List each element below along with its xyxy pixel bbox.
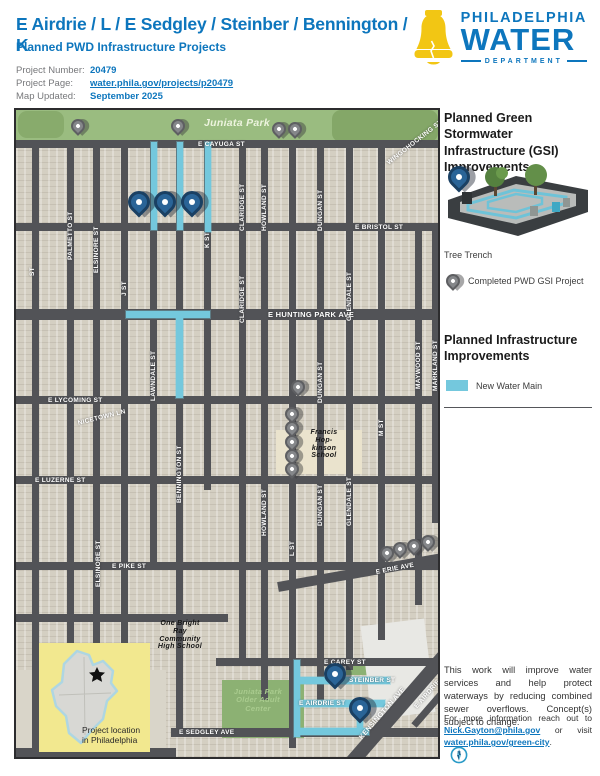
project-page-link[interactable]: water.phila.gov/projects/p20479 — [90, 77, 233, 90]
street-label: E HUNTING PARK AVE — [268, 311, 354, 319]
sidebar-divider — [444, 407, 592, 408]
page-subtitle: Planned PWD Infrastructure Projects — [16, 40, 226, 54]
locator-inset: Project location in Philadelphia — [39, 643, 150, 752]
project-number-label: Project Number: — [16, 64, 90, 77]
land-area — [18, 111, 64, 138]
street-label: J ST — [121, 281, 128, 296]
contact-link[interactable]: Nick.Gayton@phila.gov — [444, 725, 540, 735]
contact-text: or visit — [540, 725, 592, 735]
tree-trench-label: Tree Trench — [444, 250, 492, 260]
water-main-legend-row: New Water Main — [446, 380, 542, 391]
street-label: CLARIDGE ST — [239, 276, 246, 323]
street-label: ELSINORE ST — [93, 226, 100, 273]
map-updated-row: Map Updated: September 2025 — [16, 90, 233, 103]
street-label: DUNGAN ST — [317, 485, 324, 526]
new-water-main-segment — [126, 311, 210, 318]
infrastructure-heading: Planned Infrastructure Improvements — [444, 332, 584, 365]
water-main-swatch — [446, 380, 468, 391]
street-label: K ST — [204, 232, 211, 248]
new-water-main-segment — [176, 318, 183, 398]
street-label: BENNINGTON ST — [176, 445, 183, 503]
place-label: Francis Hop- kinson School — [300, 429, 348, 460]
contact-text: For more information reach out to — [444, 713, 592, 723]
street-label: HOWLAND ST — [261, 489, 268, 536]
contact-paragraph: For more information reach out to Nick.G… — [444, 712, 592, 748]
logo-department-text: DEPARTMENT — [485, 58, 563, 65]
logo-rule-left — [461, 60, 481, 63]
street-label: PALMETTO ST — [67, 211, 74, 260]
contact-text: . — [550, 737, 552, 747]
logo-rule-right — [567, 60, 587, 63]
project-page-row: Project Page: water.phila.gov/projects/p… — [16, 77, 233, 90]
street-segment — [16, 309, 438, 320]
street-segment — [346, 140, 353, 670]
map-updated-value: September 2025 — [90, 90, 163, 103]
street-label: E CAYUGA ST — [198, 141, 245, 148]
project-number-value: 20479 — [90, 64, 116, 77]
liberty-bell-icon — [413, 10, 454, 66]
pwd-logo-text: PHILADELPHIA WATER DEPARTMENT — [461, 10, 587, 65]
street-label: E PIKE ST — [112, 563, 146, 570]
street-label: M ST — [378, 419, 385, 436]
completed-gsi-label: Completed PWD GSI Project — [468, 276, 584, 286]
logo-line-water: WATER — [461, 26, 587, 55]
map-updated-label: Map Updated: — [16, 90, 90, 103]
new-water-main-segment — [205, 142, 211, 232]
street-label: E AIRDRIE ST — [299, 700, 345, 707]
logo-line-department: DEPARTMENT — [461, 58, 587, 65]
street-segment — [378, 140, 385, 640]
inset-caption: Project location in Philadelphia — [82, 725, 144, 746]
street-label: LAWNDALE ST — [150, 351, 157, 401]
street-segment — [32, 140, 39, 748]
street-label: GLENDALE ST — [346, 272, 353, 321]
street-label: DUNGAN ST — [317, 362, 324, 403]
legend-sidebar: Planned Green Stormwater Infrastructure … — [444, 108, 592, 755]
project-area-map: E CAYUGA STE BRISTOL STE HUNTING PARK AV… — [14, 108, 440, 759]
street-label: NICETOWN LN — [77, 408, 126, 427]
street-label: CLARIDGE ST — [239, 184, 246, 231]
street-label: E LUZERNE ST — [35, 477, 86, 484]
completed-gsi-pin-icon — [443, 271, 463, 291]
street-label: MAYWOOD ST — [415, 341, 422, 389]
place-label: One Bright Ray Community High School — [150, 620, 210, 651]
place-label: Juniata Park Older Adult Center — [220, 688, 296, 713]
street-label: GLENDALE ST — [346, 477, 353, 526]
new-water-main-segment — [177, 142, 183, 230]
street-label: HOWLAND ST — [261, 184, 268, 231]
project-number-row: Project Number: 20479 — [16, 64, 233, 77]
place-label: Juniata Park — [204, 118, 270, 130]
street-label: MARKLAND ST — [432, 340, 439, 391]
street-label: E SEDGLEY AVE — [179, 729, 234, 736]
street-label: L ST — [289, 541, 296, 556]
pwd-logo: PHILADELPHIA WATER DEPARTMENT — [413, 10, 587, 66]
street-label: E BRISTOL ST — [355, 224, 403, 231]
project-page-label: Project Page: — [16, 77, 90, 90]
svg-text:N: N — [457, 750, 460, 755]
compass-north-icon: N — [450, 746, 468, 764]
street-label: STEINBER ST — [349, 677, 395, 684]
street-label: ELSINORE ST — [95, 540, 102, 587]
completed-gsi-legend-row: Completed PWD GSI Project — [446, 274, 584, 288]
pwd-project-flyer: E Airdrie / L / E Sedgley / Steinber / B… — [0, 0, 600, 776]
street-label: ST — [29, 267, 36, 276]
new-water-main-segment — [151, 142, 157, 230]
water-main-label: New Water Main — [476, 381, 542, 391]
street-label: DUNGAN ST — [317, 190, 324, 231]
street-label: E LYCOMING ST — [48, 397, 103, 404]
project-info: Project Number: 20479 Project Page: wate… — [16, 64, 233, 103]
